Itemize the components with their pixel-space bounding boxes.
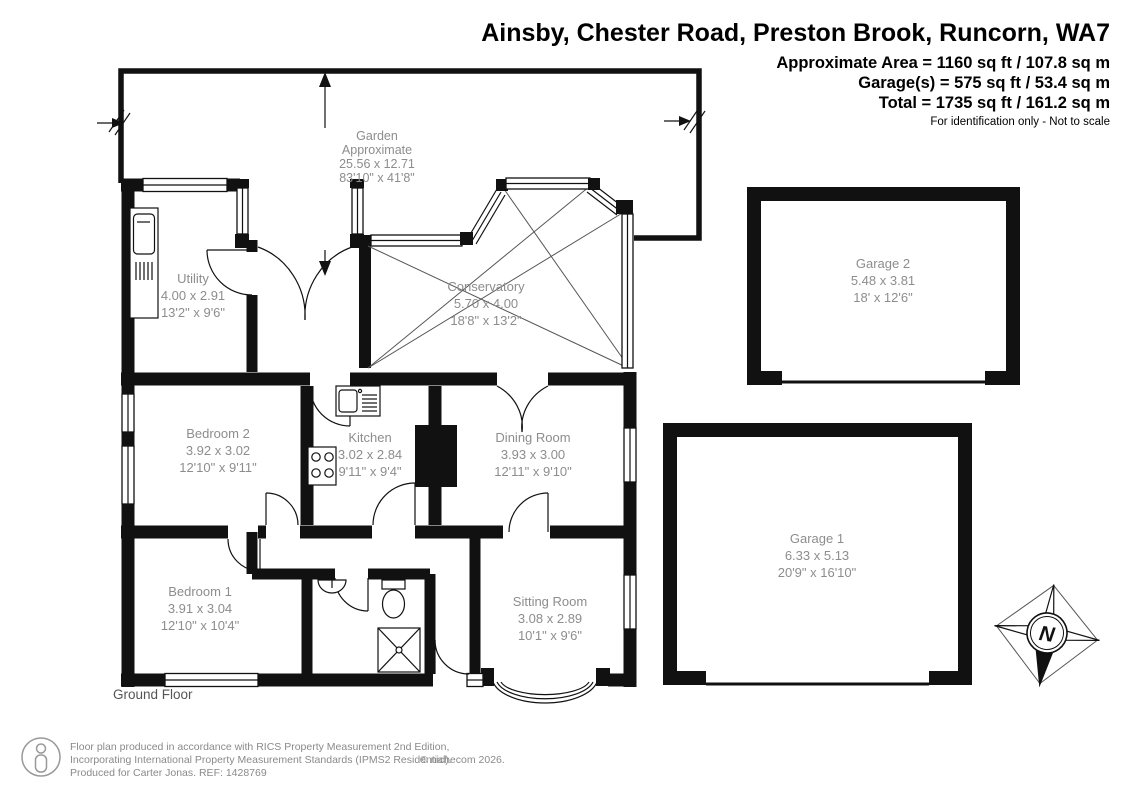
svg-text:3.93 x 3.00: 3.93 x 3.00 <box>501 447 565 462</box>
north-compass-icon: N <box>987 577 1106 695</box>
garden-label: Garden Approximate 25.56 x 12.71 83'10" … <box>339 129 415 185</box>
svg-text:5.48 x 3.81: 5.48 x 3.81 <box>851 273 915 288</box>
stove <box>308 447 336 485</box>
svg-text:Bedroom 1: Bedroom 1 <box>168 584 232 599</box>
footer: Floor plan produced in accordance with R… <box>22 738 505 779</box>
svg-text:3.91 x 3.04: 3.91 x 3.04 <box>168 601 232 616</box>
utility-label: Utility 4.00 x 2.91 13'2" x 9'6" <box>161 271 226 320</box>
approx-area-text: Approximate Area = 1160 sq ft / 107.8 sq… <box>776 54 1110 72</box>
floor-label: Ground Floor <box>113 687 193 702</box>
svg-text:6.33 x 5.13: 6.33 x 5.13 <box>785 548 849 563</box>
svg-text:5.70 x 4.00: 5.70 x 4.00 <box>454 296 518 311</box>
conservatory-label: Conservatory 5.70 x 4.00 18'8" x 13'2" <box>447 279 525 328</box>
shower-tray <box>378 628 420 672</box>
svg-text:12'10" x 9'11": 12'10" x 9'11" <box>179 460 257 475</box>
chimney-breast <box>415 425 457 487</box>
svg-text:Sitting Room: Sitting Room <box>513 594 587 609</box>
svg-text:83'10" x 41'8": 83'10" x 41'8" <box>339 171 415 185</box>
up-arrow-icon <box>319 72 331 87</box>
footer-line2: Incorporating International Property Mea… <box>70 754 452 766</box>
svg-text:Approximate: Approximate <box>342 143 412 157</box>
conservatory-glazing <box>368 178 633 368</box>
bedroom2-label: Bedroom 2 3.92 x 3.02 12'10" x 9'11" <box>179 426 257 475</box>
disclaimer-text: For identification only - Not to scale <box>930 116 1110 128</box>
garage-area-text: Garage(s) = 575 sq ft / 53.4 sq m <box>858 74 1110 92</box>
footer-copyright: © nichecom 2026. <box>420 754 505 766</box>
svg-text:3.02 x 2.84: 3.02 x 2.84 <box>338 447 402 462</box>
floorplan-canvas: Ainsby, Chester Road, Preston Brook, Run… <box>0 0 1131 800</box>
garage2-label: Garage 2 5.48 x 3.81 18' x 12'6" <box>851 256 915 305</box>
toilet <box>382 580 405 618</box>
svg-text:13'2" x 9'6": 13'2" x 9'6" <box>161 305 225 320</box>
footer-line3: Produced for Carter Jonas. REF: 1428769 <box>70 767 267 779</box>
svg-text:20'9" x 16'10": 20'9" x 16'10" <box>778 565 857 580</box>
garage1-label: Garage 1 6.33 x 5.13 20'9" x 16'10" <box>778 531 857 580</box>
person-icon <box>22 738 60 776</box>
kitchen-label: Kitchen 3.02 x 2.84 9'11" x 9'4" <box>338 430 402 479</box>
kitchen-sink <box>336 386 380 416</box>
svg-text:12'11" x 9'10": 12'11" x 9'10" <box>494 464 572 479</box>
bay-window <box>493 682 597 703</box>
svg-text:Utility: Utility <box>177 271 209 286</box>
svg-text:Bedroom 2: Bedroom 2 <box>186 426 250 441</box>
svg-text:4.00 x 2.91: 4.00 x 2.91 <box>161 288 225 303</box>
floorplan-page: Ainsby, Chester Road, Preston Brook, Run… <box>0 0 1131 800</box>
bedroom1-label: Bedroom 1 3.91 x 3.04 12'10" x 10'4" <box>161 584 240 633</box>
page-title: Ainsby, Chester Road, Preston Brook, Run… <box>481 19 1110 47</box>
svg-text:Garden: Garden <box>356 129 398 143</box>
svg-text:Conservatory: Conservatory <box>447 279 525 294</box>
svg-text:25.56 x 12.71: 25.56 x 12.71 <box>339 157 415 171</box>
dining-room-label: Dining Room 3.93 x 3.00 12'11" x 9'10" <box>494 430 572 479</box>
basin <box>318 580 346 593</box>
svg-text:3.08 x 2.89: 3.08 x 2.89 <box>518 611 582 626</box>
svg-text:Dining Room: Dining Room <box>495 430 570 445</box>
svg-text:12'10" x 10'4": 12'10" x 10'4" <box>161 618 240 633</box>
svg-text:18'8" x 13'2": 18'8" x 13'2" <box>450 313 522 328</box>
footer-line1: Floor plan produced in accordance with R… <box>70 741 449 753</box>
down-arrow-icon <box>319 261 331 276</box>
svg-text:9'11" x 9'4": 9'11" x 9'4" <box>338 464 401 479</box>
svg-text:Garage 2: Garage 2 <box>856 256 910 271</box>
svg-text:Kitchen: Kitchen <box>348 430 391 445</box>
svg-text:18' x 12'6": 18' x 12'6" <box>853 290 913 305</box>
sitting-room-label: Sitting Room 3.08 x 2.89 10'1" x 9'6" <box>513 594 587 643</box>
svg-text:10'1" x 9'6": 10'1" x 9'6" <box>518 628 582 643</box>
svg-text:3.92 x 3.02: 3.92 x 3.02 <box>186 443 250 458</box>
total-area-text: Total = 1735 sq ft / 161.2 sq m <box>879 94 1110 112</box>
svg-text:Garage 1: Garage 1 <box>790 531 844 546</box>
